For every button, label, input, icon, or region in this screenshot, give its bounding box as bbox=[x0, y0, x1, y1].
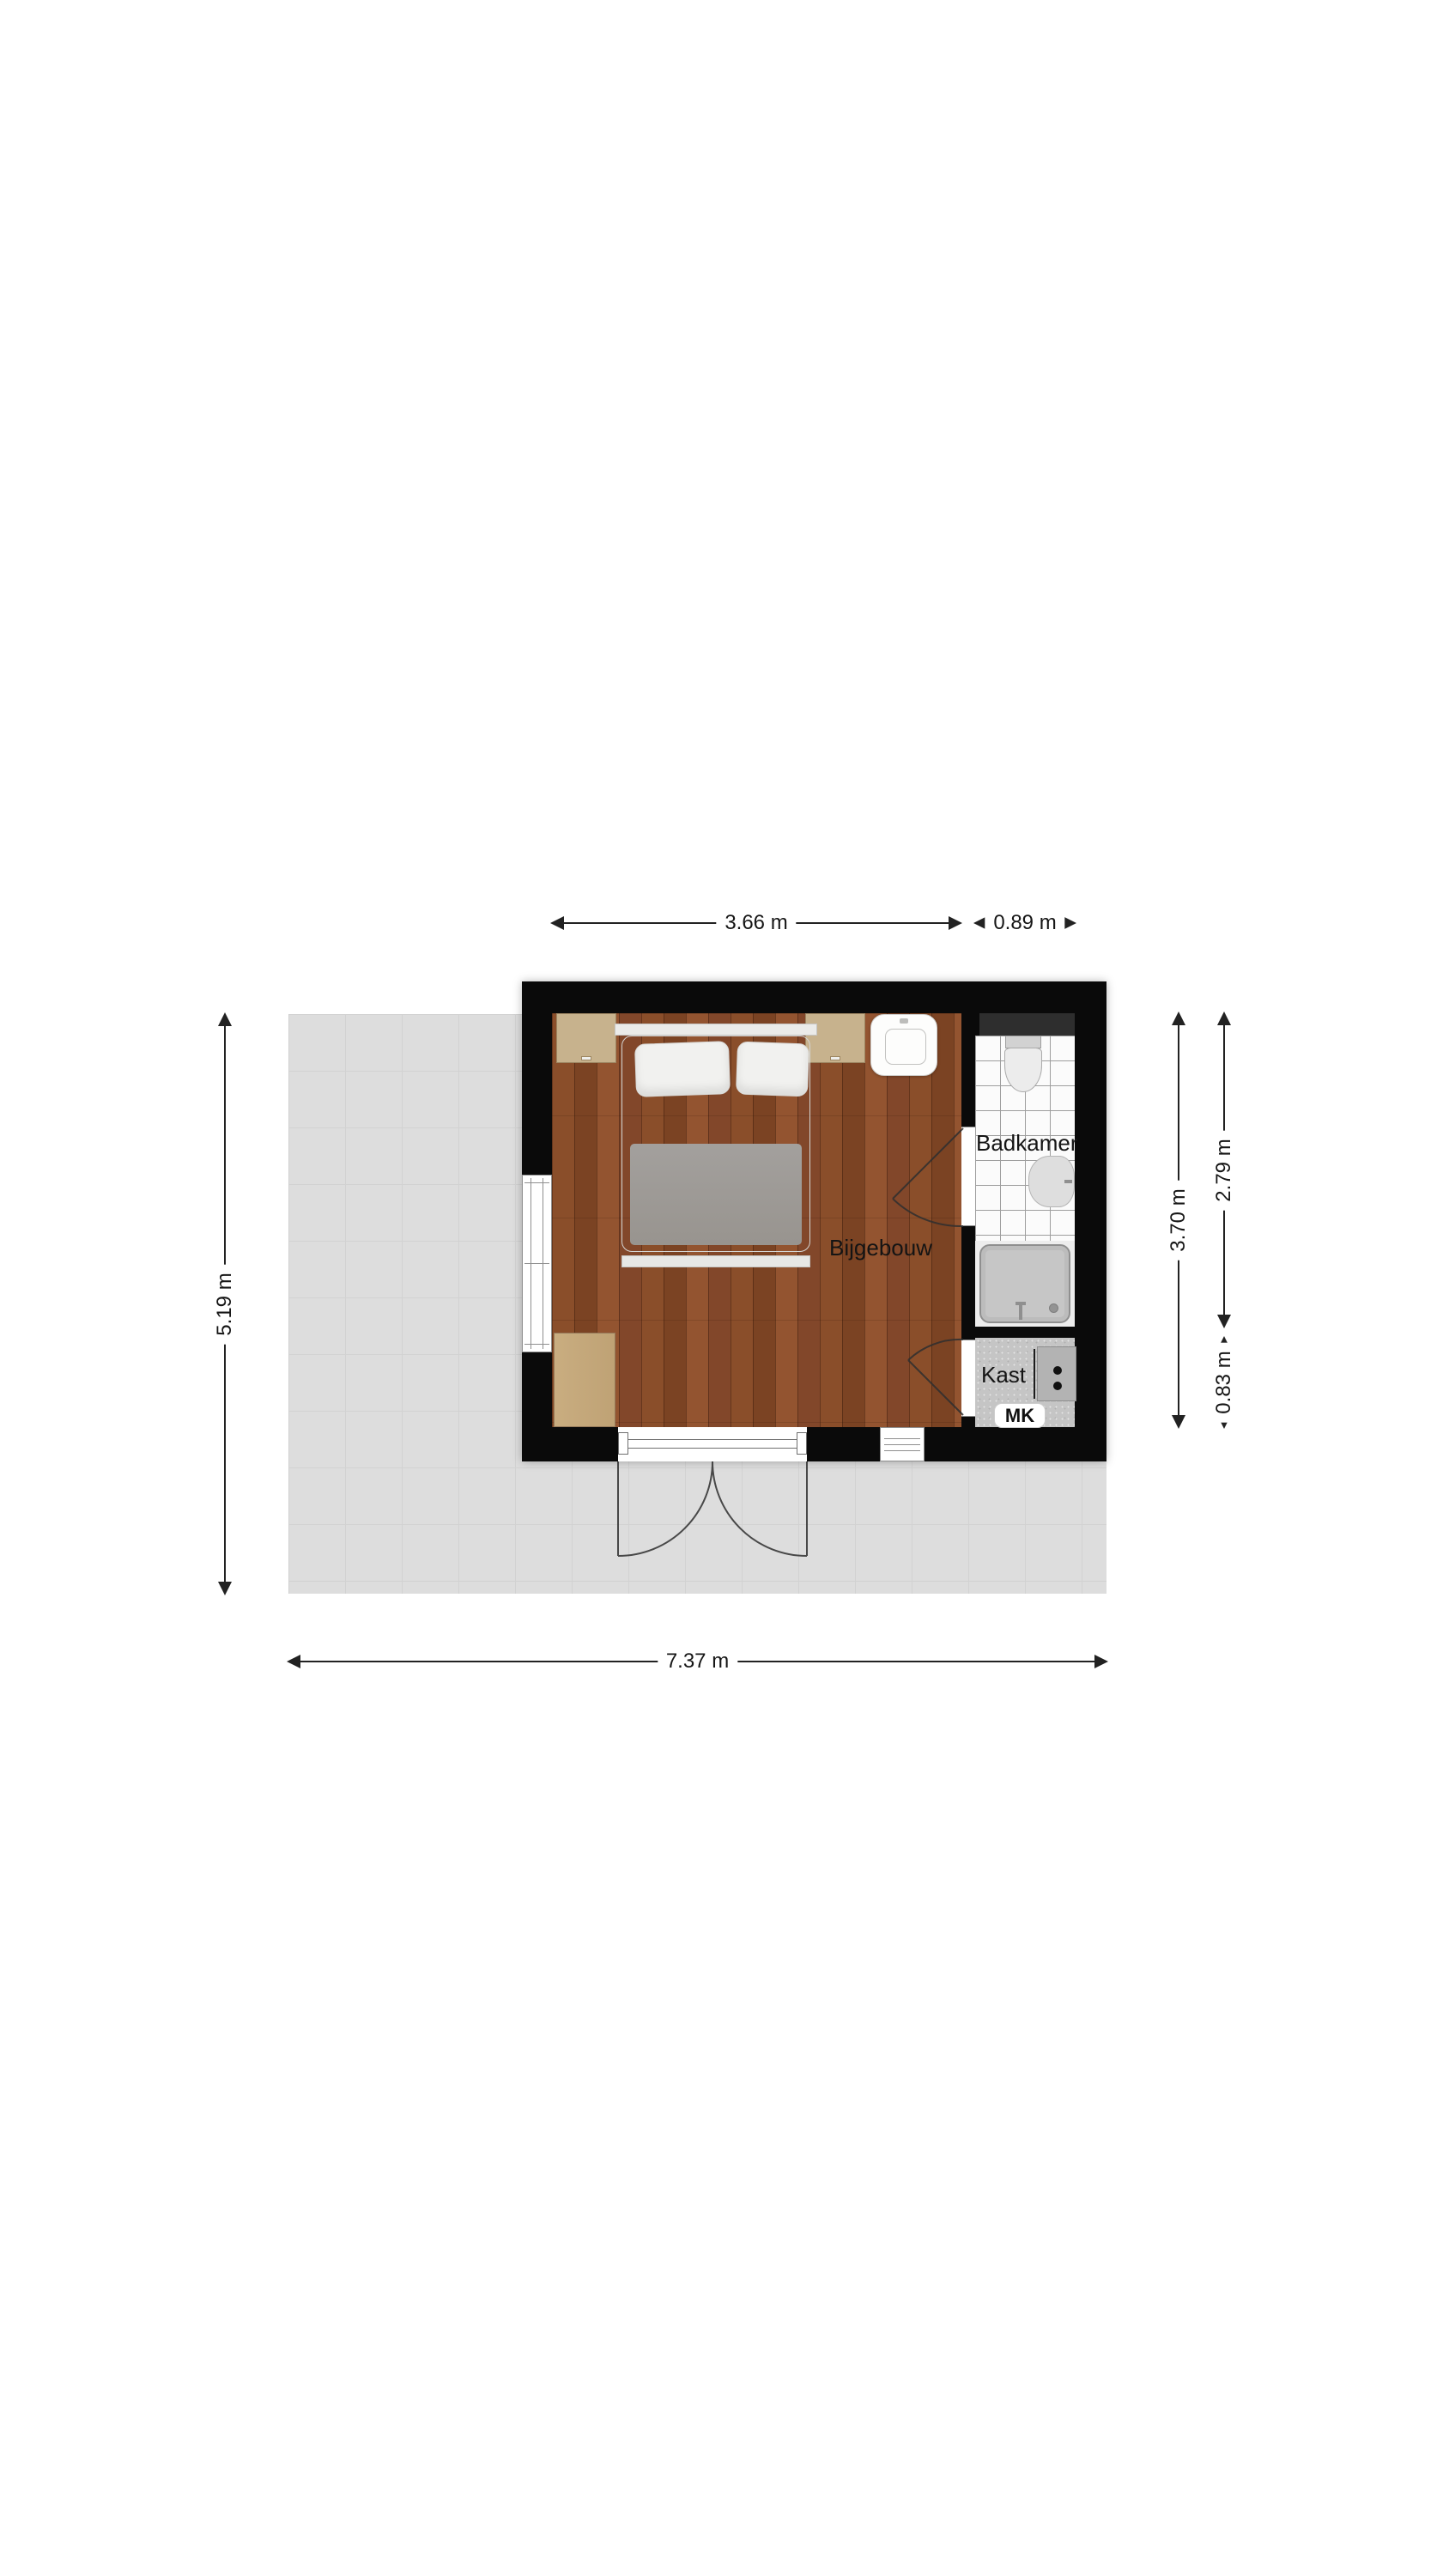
dimension-label: 7.37 m bbox=[658, 1649, 737, 1674]
arrowhead-right-icon bbox=[949, 916, 962, 930]
dimension-label: 0.89 m bbox=[985, 911, 1064, 935]
arrowhead-down-icon bbox=[218, 1582, 232, 1595]
dimension-label: 5.19 m bbox=[213, 1264, 237, 1344]
arrowhead-left-icon bbox=[550, 916, 564, 930]
dimension-label: 3.66 m bbox=[716, 911, 796, 935]
dimension-label: 2.79 m bbox=[1212, 1130, 1236, 1210]
arrowhead-up-icon bbox=[1172, 1012, 1185, 1025]
arrowhead-right-icon bbox=[1094, 1655, 1108, 1668]
arrowhead-up-icon bbox=[218, 1012, 232, 1026]
dimension-label: 3.70 m bbox=[1167, 1180, 1191, 1260]
floorplan-page: Bijgebouw Badkamer Kast MK 3.66 m 0.89 m… bbox=[0, 0, 1449, 2576]
dimension-label: 0.83 m bbox=[1212, 1342, 1236, 1422]
arrowhead-down-icon bbox=[1172, 1415, 1185, 1429]
arrowhead-up-icon bbox=[1217, 1012, 1231, 1025]
arrowhead-left-icon bbox=[287, 1655, 300, 1668]
arrowhead-down-icon bbox=[1217, 1315, 1231, 1328]
